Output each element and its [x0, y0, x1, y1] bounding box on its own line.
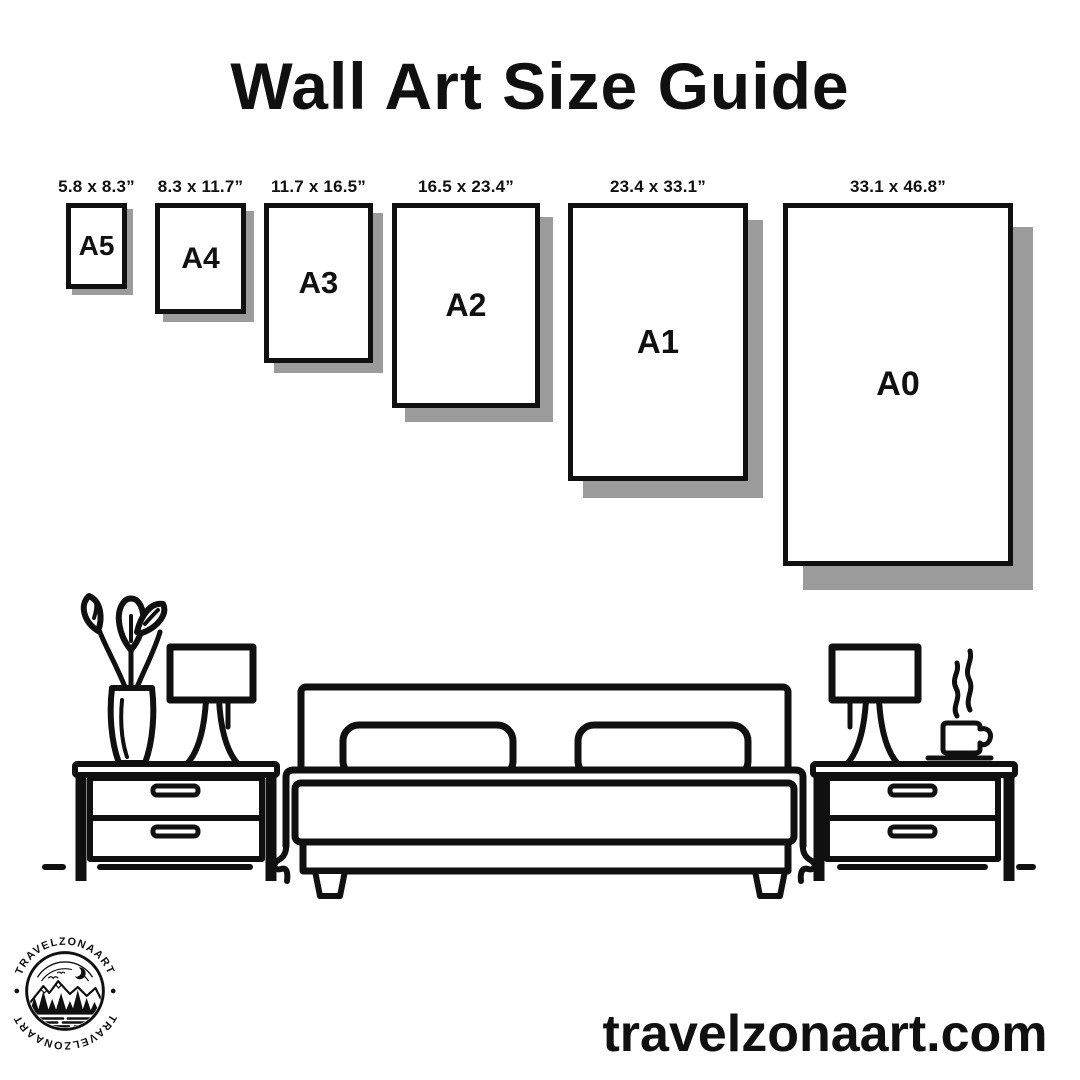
bird-icon [57, 972, 65, 973]
mountains [28, 981, 105, 1006]
logo-text-top: TRAVELZONAART [13, 936, 117, 977]
bed-base [303, 842, 788, 871]
steam [967, 651, 970, 710]
lamp-right [832, 647, 918, 764]
logo-text-bottom: TRAVELZONAART [11, 1012, 118, 1050]
bed-leg-left [315, 871, 345, 896]
drawer-handle [153, 786, 198, 795]
website-url: travelzonaart.com [600, 1004, 1050, 1064]
brand-logo: TRAVELZONAART TRAVELZONAART [6, 932, 124, 1050]
bedroom-illustration [0, 0, 1080, 1080]
nightstand-right [813, 764, 1015, 881]
drawer-handle [890, 786, 935, 795]
logo-dot-left [14, 989, 19, 994]
bird-icon [48, 977, 58, 978]
lamp-shade [170, 647, 253, 700]
leaf [84, 596, 101, 631]
drawer-handle [890, 827, 935, 836]
coffee-cup [928, 651, 991, 758]
nightstand-top [75, 764, 277, 775]
steam [954, 663, 957, 716]
svg-text:TRAVELZONAART: TRAVELZONAART [13, 936, 117, 977]
bed [274, 687, 814, 896]
nightstand-left [75, 764, 277, 881]
logo-dot-right [111, 989, 116, 994]
lamp-stem [847, 700, 898, 764]
lamp-left [170, 647, 253, 764]
svg-text:TRAVELZONAART: TRAVELZONAART [11, 1012, 118, 1050]
nightstand-top [813, 764, 1015, 775]
lamp-shade [832, 647, 918, 700]
mattress [295, 783, 794, 842]
wall-art-size-guide-poster: Wall Art Size Guide 5.8 x 8.3” A5 8.3 x … [0, 0, 1080, 1080]
vase [111, 688, 154, 763]
blanket-drape-right [801, 844, 815, 881]
cup-body [943, 723, 991, 753]
bed-leg-right [755, 871, 785, 896]
plant-vase [84, 596, 165, 763]
drawer-handle [153, 827, 198, 836]
